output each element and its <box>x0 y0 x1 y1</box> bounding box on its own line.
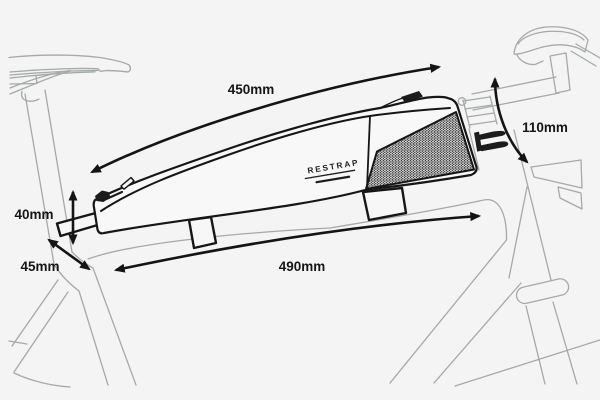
svg-text:40mm: 40mm <box>14 207 53 222</box>
svg-text:45mm: 45mm <box>20 259 59 274</box>
svg-text:110mm: 110mm <box>522 120 568 135</box>
svg-text:450mm: 450mm <box>228 82 275 97</box>
svg-text:490mm: 490mm <box>279 259 326 274</box>
